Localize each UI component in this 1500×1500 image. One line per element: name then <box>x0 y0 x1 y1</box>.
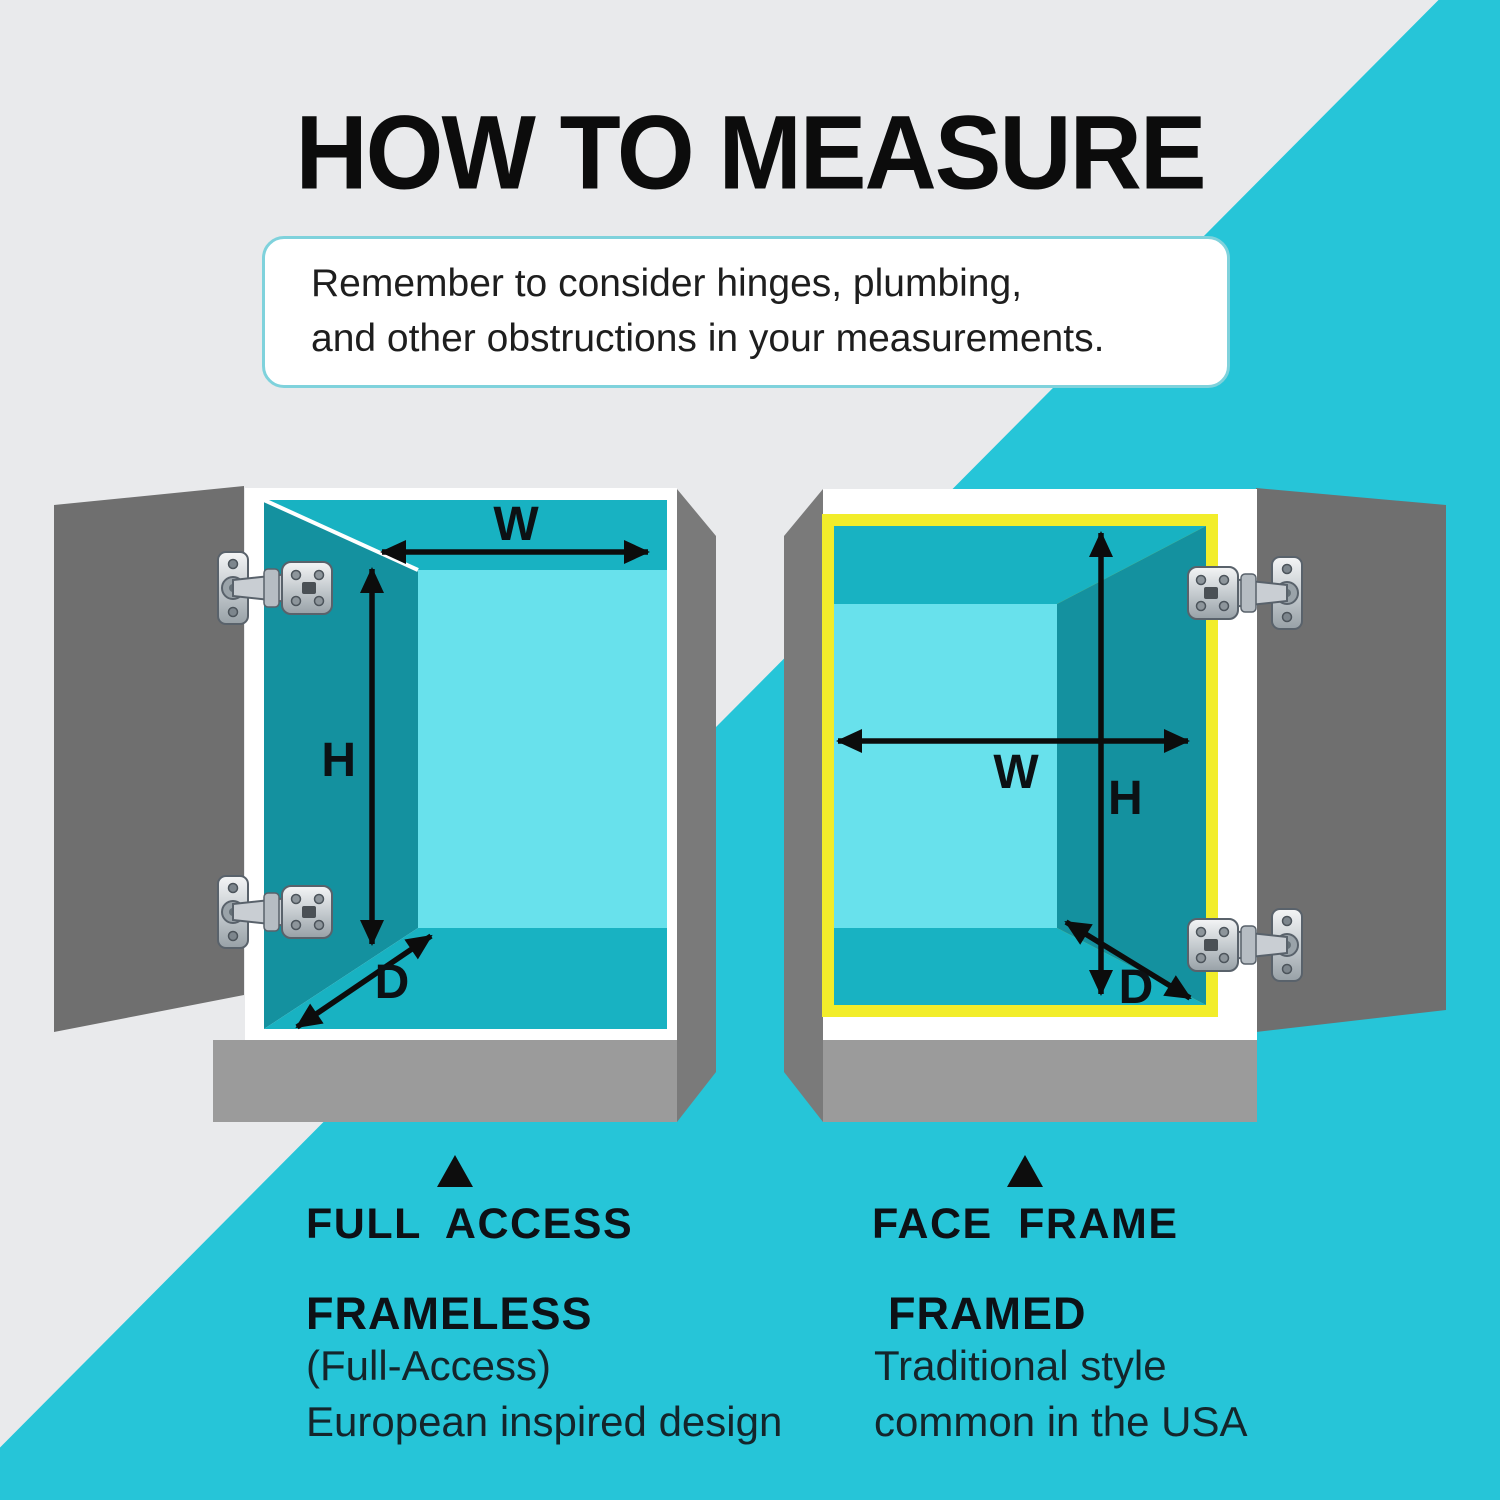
cabinet-base <box>823 1040 1257 1122</box>
legend-right-line-1: Traditional style <box>874 1342 1167 1390</box>
depth-label: D <box>375 956 410 1009</box>
legend-left-line-1: (Full-Access) <box>306 1342 551 1390</box>
legend-left-line-2: European inspired design <box>306 1398 782 1446</box>
cabinet-door <box>54 486 244 1032</box>
legend-left-heading: FULL ACCESS <box>306 1200 633 1249</box>
cabinet-base <box>213 1040 677 1122</box>
legend-right-line-2: common in the USA <box>874 1398 1248 1446</box>
width-label: W <box>493 498 539 551</box>
cabinet-right: W H D <box>784 488 1446 1122</box>
infographic-canvas: HOW TO MEASURE Remember to consider hing… <box>0 0 1500 1500</box>
pointer-triangle-icon <box>1007 1155 1043 1187</box>
cabinet-left: W H D <box>54 486 716 1122</box>
cabinet-side-panel <box>677 489 716 1122</box>
legend-right-heading: FACE FRAME <box>872 1200 1179 1249</box>
height-label: H <box>321 734 356 787</box>
width-label: W <box>993 746 1039 799</box>
cabinet-side-panel <box>784 489 823 1122</box>
depth-label: D <box>1119 961 1154 1014</box>
legend-left-subheading: FRAMELESS <box>306 1288 593 1340</box>
interior-back-panel <box>418 570 667 928</box>
legend-right-subheading: FRAMED <box>888 1288 1086 1340</box>
pointer-triangle-icon <box>437 1155 473 1187</box>
height-label: H <box>1108 772 1143 825</box>
cabinet-illustrations: W H D W H D <box>0 0 1500 1500</box>
